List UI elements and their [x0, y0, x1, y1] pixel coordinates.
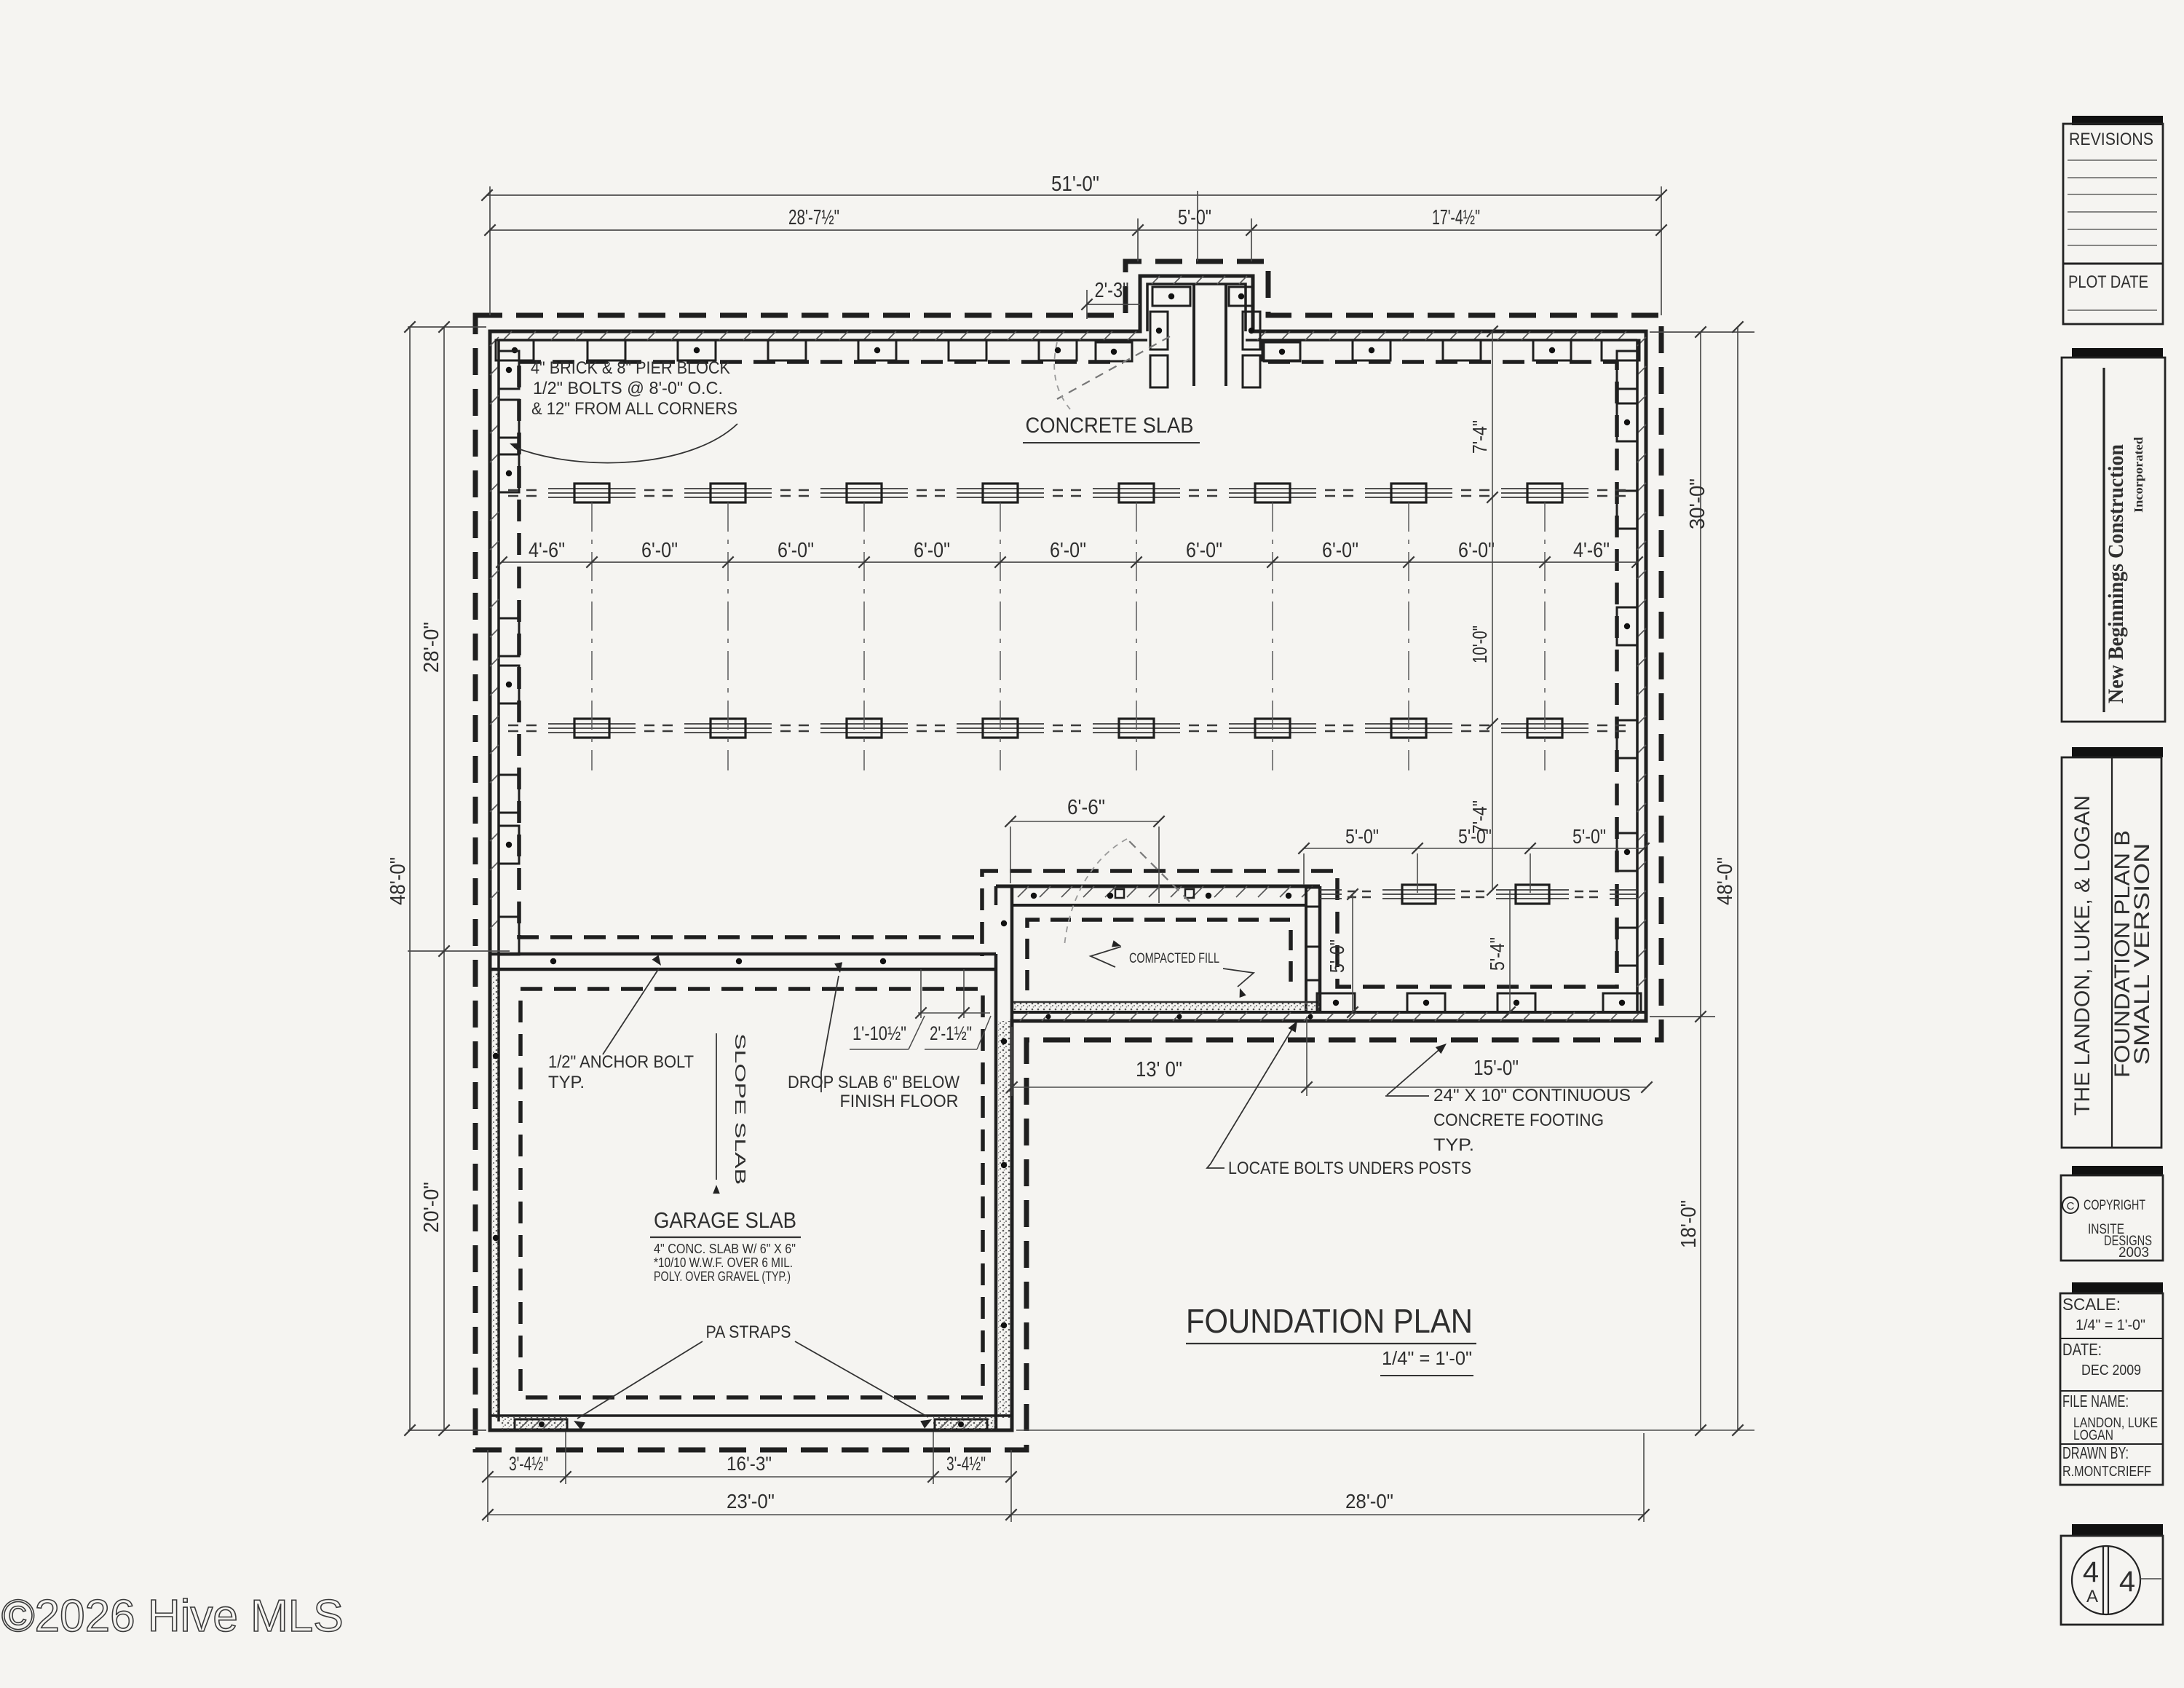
svg-text:28'-0": 28'-0" [1345, 1490, 1393, 1513]
svg-text:4'-6": 4'-6" [529, 539, 565, 562]
svg-text:New Beginnings Construction: New Beginnings Construction [2104, 444, 2128, 703]
svg-text:17'-4½": 17'-4½" [1432, 206, 1480, 229]
svg-text:POLY. OVER GRAVEL (TYP.): POLY. OVER GRAVEL (TYP.) [654, 1269, 791, 1284]
svg-text:CONCRETE FOOTING: CONCRETE FOOTING [1433, 1111, 1604, 1130]
svg-text:FOUNDATION PLAN: FOUNDATION PLAN [1186, 1302, 1473, 1340]
svg-text:18'-0": 18'-0" [1677, 1200, 1701, 1248]
svg-text:A: A [2086, 1587, 2098, 1606]
svg-text:6'-0": 6'-0" [1322, 539, 1358, 562]
svg-text:28'-7½": 28'-7½" [788, 206, 839, 229]
svg-text:48'-0": 48'-0" [387, 857, 410, 905]
svg-text:6'-0": 6'-0" [1050, 539, 1086, 562]
svg-text:GARAGE SLAB: GARAGE SLAB [654, 1207, 796, 1233]
svg-text:5'-0": 5'-0" [1458, 825, 1492, 848]
svg-text:4: 4 [2083, 1556, 2099, 1588]
svg-text:10'-0": 10'-0" [1468, 626, 1491, 663]
svg-text:2'-1½": 2'-1½" [930, 1022, 972, 1044]
svg-text:4: 4 [2119, 1566, 2135, 1598]
svg-text:16'-3": 16'-3" [727, 1453, 772, 1475]
svg-text:LOCATE BOLTS UNDERS POSTS: LOCATE BOLTS UNDERS POSTS [1228, 1159, 1471, 1178]
svg-text:5'-0": 5'-0" [1345, 825, 1379, 848]
svg-text:2003: 2003 [2118, 1245, 2149, 1261]
svg-text:6'-0": 6'-0" [641, 539, 678, 562]
svg-text:20'-0": 20'-0" [420, 1182, 443, 1233]
svg-text:FINISH FLOOR: FINISH FLOOR [840, 1092, 959, 1111]
svg-text:DROP SLAB 6" BELOW: DROP SLAB 6" BELOW [788, 1073, 960, 1092]
svg-text:SLOPE SLAB: SLOPE SLAB [732, 1033, 748, 1185]
svg-text:4" CONC. SLAB W/ 6" X 6": 4" CONC. SLAB W/ 6" X 6" [654, 1242, 796, 1256]
svg-text:DEC 2009: DEC 2009 [2081, 1362, 2141, 1379]
svg-text:1/2" ANCHOR BOLT: 1/2" ANCHOR BOLT [548, 1052, 694, 1072]
svg-text:5'-0": 5'-0" [1572, 825, 1606, 848]
svg-text:6'-0": 6'-0" [778, 539, 814, 562]
svg-text:5'-4": 5'-4" [1486, 937, 1508, 971]
svg-text:©2026 Hive MLS: ©2026 Hive MLS [1, 1591, 344, 1641]
svg-text:Incorporated: Incorporated [2132, 436, 2145, 513]
svg-text:24" X 10" CONTINUOUS: 24" X 10" CONTINUOUS [1433, 1086, 1631, 1105]
svg-text:CONCRETE SLAB: CONCRETE SLAB [1026, 414, 1194, 438]
svg-text:2'-3": 2'-3" [1095, 279, 1129, 302]
svg-text:4'-6": 4'-6" [1573, 539, 1610, 562]
svg-text:DATE:: DATE: [2062, 1340, 2102, 1359]
svg-text:51'-0": 51'-0" [1051, 173, 1099, 196]
svg-text:*10/10 W.W.F. OVER 6 MIL.: *10/10 W.W.F. OVER 6 MIL. [654, 1255, 793, 1270]
svg-text:COPYRIGHT: COPYRIGHT [2084, 1198, 2145, 1213]
svg-text:3'-4½": 3'-4½" [509, 1453, 548, 1475]
svg-text:28'-0": 28'-0" [420, 622, 443, 673]
svg-text:6'-0": 6'-0" [1458, 539, 1495, 562]
svg-text:C: C [2067, 1200, 2075, 1212]
svg-text:1/2" BOLTS @ 8'-0" O.C.: 1/2" BOLTS @ 8'-0" O.C. [533, 379, 723, 398]
svg-text:PLOT DATE: PLOT DATE [2068, 272, 2148, 292]
svg-text:48'-0": 48'-0" [1714, 857, 1737, 905]
svg-text:7'-4": 7'-4" [1468, 420, 1491, 454]
svg-text:5'-0": 5'-0" [1326, 939, 1348, 973]
svg-text:15'-0": 15'-0" [1473, 1057, 1519, 1080]
svg-text:& 12" FROM ALL CORNERS: & 12" FROM ALL CORNERS [531, 399, 737, 419]
svg-text:PA STRAPS: PA STRAPS [706, 1322, 791, 1342]
svg-text:TYP.: TYP. [1433, 1135, 1474, 1155]
svg-text:THE LANDON, LUKE, & LOGAN: THE LANDON, LUKE, & LOGAN [2070, 795, 2094, 1116]
svg-text:LOGAN: LOGAN [2073, 1428, 2113, 1443]
svg-text:REVISIONS: REVISIONS [2069, 130, 2153, 149]
svg-text:COMPACTED FILL: COMPACTED FILL [1129, 951, 1219, 966]
svg-text:4" BRICK & 8" PIER BLOCK: 4" BRICK & 8" PIER BLOCK [531, 358, 730, 378]
svg-text:TYP.: TYP. [548, 1073, 585, 1092]
svg-text:6'-0": 6'-0" [1186, 539, 1222, 562]
svg-text:23'-0": 23'-0" [727, 1490, 775, 1513]
svg-text:6'-6": 6'-6" [1067, 796, 1105, 819]
svg-text:5'-0": 5'-0" [1178, 206, 1211, 229]
svg-text:R.MONTCRIEFF: R.MONTCRIEFF [2062, 1464, 2151, 1480]
svg-text:6'-0": 6'-0" [914, 539, 950, 562]
svg-text:1'-10½": 1'-10½" [852, 1022, 906, 1044]
svg-text:FILE NAME:: FILE NAME: [2062, 1392, 2129, 1411]
svg-text:30'-0": 30'-0" [1686, 478, 1709, 529]
svg-text:1/4" = 1'-0": 1/4" = 1'-0" [2076, 1317, 2145, 1333]
svg-text:SCALE:: SCALE: [2062, 1295, 2121, 1314]
svg-text:1/4" = 1'-0": 1/4" = 1'-0" [1382, 1347, 1472, 1369]
svg-text:DRAWN BY:: DRAWN BY: [2062, 1443, 2129, 1462]
svg-text:3'-4½": 3'-4½" [946, 1453, 986, 1475]
svg-text:13' 0": 13' 0" [1136, 1058, 1182, 1081]
svg-text:SMALL VERSION: SMALL VERSION [2130, 843, 2154, 1065]
